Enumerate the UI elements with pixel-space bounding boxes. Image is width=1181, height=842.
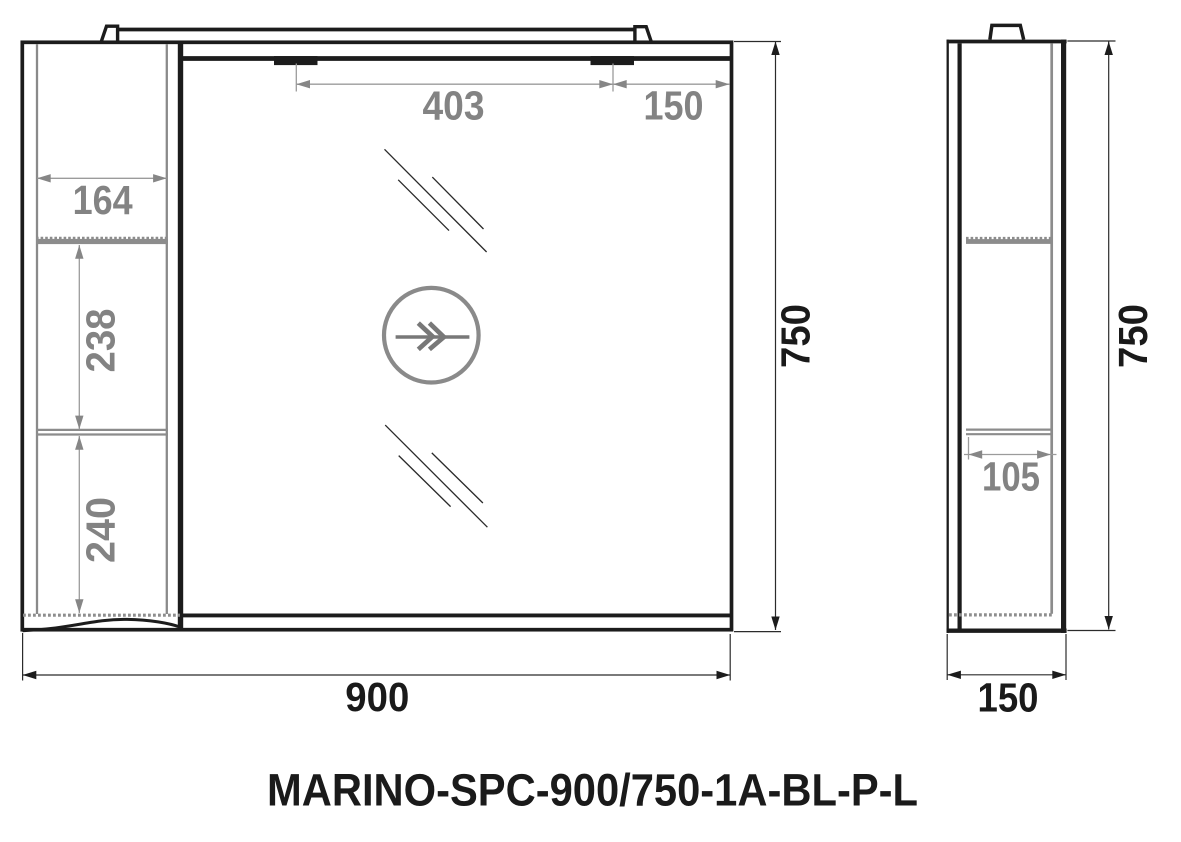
svg-text:900: 900 — [345, 674, 409, 720]
svg-text:750: 750 — [772, 304, 818, 368]
svg-text:150: 150 — [978, 675, 1039, 721]
svg-text:150: 150 — [644, 83, 704, 129]
svg-text:240: 240 — [77, 497, 123, 563]
svg-text:403: 403 — [423, 83, 485, 129]
svg-text:105: 105 — [982, 454, 1040, 500]
svg-text:750: 750 — [1110, 304, 1156, 368]
svg-text:164: 164 — [73, 177, 133, 223]
svg-text:238: 238 — [77, 309, 123, 373]
svg-text:MARINO-SPC-900/750-1A-BL-P-L: MARINO-SPC-900/750-1A-BL-P-L — [267, 765, 918, 816]
